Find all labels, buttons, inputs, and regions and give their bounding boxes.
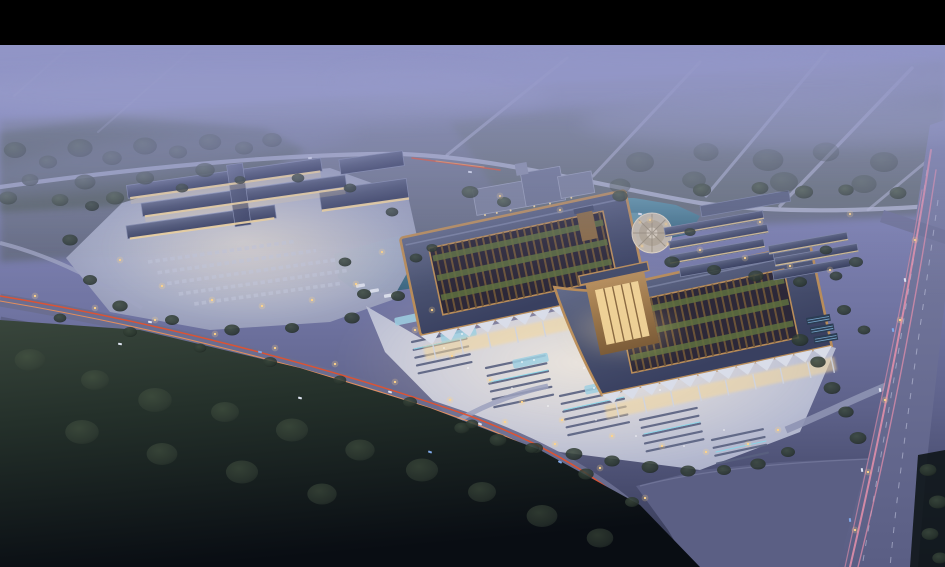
tree — [224, 325, 239, 336]
tree — [138, 388, 172, 412]
tree — [466, 420, 479, 429]
tree — [858, 326, 871, 335]
tree — [165, 315, 179, 325]
tree — [226, 461, 258, 484]
mist-layer — [0, 45, 945, 295]
street-lamp — [332, 361, 339, 368]
plaza-lamp — [745, 441, 752, 448]
plaza-lamp — [659, 443, 666, 450]
tree — [81, 370, 109, 390]
tree — [527, 505, 558, 527]
street-lamp — [392, 379, 399, 386]
tree — [680, 466, 695, 477]
avenue-lamp — [897, 317, 904, 324]
street-lamp — [212, 331, 219, 338]
avenue-lamp — [852, 527, 859, 534]
tree — [837, 305, 851, 315]
site-lamp — [309, 297, 316, 304]
tree — [824, 382, 841, 394]
tree — [344, 313, 359, 324]
tree — [922, 528, 939, 540]
tree — [578, 469, 593, 480]
tree — [65, 420, 99, 444]
avenue-lamp — [865, 469, 872, 476]
tree — [123, 327, 137, 337]
plaza-lamp — [487, 377, 494, 384]
aerial-rendering — [0, 0, 945, 567]
tree — [525, 443, 539, 453]
tree — [276, 419, 308, 442]
tree — [345, 440, 374, 461]
plaza-lamp — [449, 353, 456, 360]
street-lamp — [152, 317, 159, 324]
tree — [587, 529, 614, 548]
street-lamp — [642, 495, 649, 502]
tree — [604, 456, 619, 467]
tree — [750, 459, 765, 470]
tree — [850, 432, 867, 444]
tree — [112, 301, 127, 312]
plaza-lamp — [559, 417, 566, 424]
tree — [566, 448, 583, 460]
street-lamp — [597, 465, 604, 472]
tree — [307, 484, 336, 505]
tree — [147, 443, 178, 465]
avenue-lamp — [882, 397, 889, 404]
street-lamp — [272, 345, 279, 352]
tree — [920, 464, 937, 476]
tree — [717, 465, 731, 475]
rendering-frame — [0, 0, 945, 567]
street-lamp — [92, 305, 99, 312]
tree — [838, 407, 853, 418]
site-lamp — [209, 297, 216, 304]
plaza-lamp — [429, 307, 436, 314]
tree — [334, 376, 347, 385]
street-lamp — [447, 397, 454, 404]
tree — [490, 434, 507, 446]
tree — [642, 461, 659, 473]
tree — [263, 357, 277, 367]
plaza-lamp — [609, 433, 616, 440]
tree — [781, 447, 795, 457]
tree — [792, 334, 809, 346]
tree — [625, 497, 639, 507]
tree — [15, 349, 46, 371]
tree — [468, 482, 496, 502]
tree — [54, 314, 67, 323]
tree — [285, 323, 299, 333]
letterbox-top — [0, 0, 945, 45]
tree — [211, 402, 239, 422]
tree — [194, 344, 207, 353]
plaza-lamp — [775, 427, 782, 434]
plaza-lamp — [519, 399, 526, 406]
street-lamp — [552, 441, 559, 448]
street-lamp — [502, 419, 509, 426]
site-lamp — [259, 303, 266, 310]
tree — [403, 397, 417, 407]
tree — [810, 357, 825, 368]
tree — [406, 459, 438, 482]
plaza-lamp — [412, 327, 419, 334]
plaza-lamp — [703, 449, 710, 456]
